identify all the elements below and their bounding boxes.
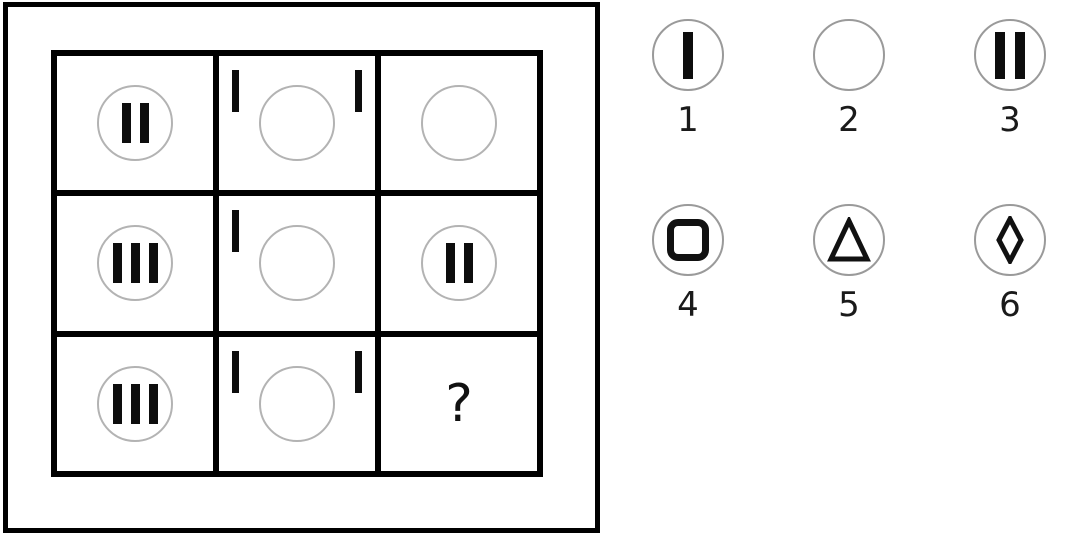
puzzle-cell-r3c1 (57, 337, 213, 471)
cell-circle (421, 85, 497, 161)
cell-circle (259, 366, 335, 442)
option-6[interactable]: 6 (974, 204, 1046, 326)
diamond-icon (995, 216, 1025, 264)
option-number: 5 (838, 285, 860, 326)
option-number: 6 (999, 285, 1021, 326)
option-3[interactable]: 3 (974, 19, 1046, 141)
puzzle-cell-r1c2 (219, 56, 375, 190)
puzzle-panel: ? (3, 2, 600, 533)
tally-bar-icon (122, 103, 131, 143)
option-number: 1 (677, 100, 699, 141)
option-number: 4 (677, 285, 699, 326)
option-circle (652, 204, 724, 276)
tick-mark-icon (232, 351, 239, 393)
single-bar-icon (683, 32, 693, 79)
cell-circle (259, 225, 335, 301)
tally-bar-icon (149, 243, 158, 283)
option-circle (974, 204, 1046, 276)
double-bar-icon (1015, 32, 1025, 79)
tally-bar-icon (131, 243, 140, 283)
option-number: 2 (838, 100, 860, 141)
option-circle (652, 19, 724, 91)
cell-circle (97, 225, 173, 301)
option-circle (813, 19, 885, 91)
option-circle (974, 19, 1046, 91)
puzzle-cell-r2c1 (57, 196, 213, 330)
option-5[interactable]: 5 (813, 204, 885, 326)
puzzle-cell-r2c3 (381, 196, 537, 330)
puzzle-grid: ? (51, 50, 543, 477)
tally-bar-icon (464, 243, 473, 283)
cell-circle (97, 85, 173, 161)
question-mark: ? (445, 378, 473, 430)
puzzle-cell-r2c2 (219, 196, 375, 330)
cell-circle (421, 225, 497, 301)
puzzle-cell-r1c1 (57, 56, 213, 190)
triangle-icon (827, 217, 871, 263)
option-4[interactable]: 4 (652, 204, 724, 326)
tally-bar-icon (446, 243, 455, 283)
tick-mark-icon (355, 70, 362, 112)
square-icon (667, 219, 709, 261)
puzzle-cell-r1c3 (381, 56, 537, 190)
tick-mark-icon (355, 351, 362, 393)
tally-bar-icon (131, 384, 140, 424)
option-1[interactable]: 1 (652, 19, 724, 141)
tick-mark-icon (232, 210, 239, 252)
tally-bar-icon (113, 384, 122, 424)
cell-circle (97, 366, 173, 442)
tally-bar-icon (140, 103, 149, 143)
cell-circle (259, 85, 335, 161)
answer-options-panel: 123456 (652, 19, 1046, 326)
puzzle-cell-r3c3: ? (381, 337, 537, 471)
tally-bar-icon (113, 243, 122, 283)
double-bar-icon (995, 32, 1005, 79)
puzzle-cell-r3c2 (219, 337, 375, 471)
option-number: 3 (999, 100, 1021, 141)
option-2[interactable]: 2 (813, 19, 885, 141)
tick-mark-icon (232, 70, 239, 112)
option-circle (813, 204, 885, 276)
tally-bar-icon (149, 384, 158, 424)
